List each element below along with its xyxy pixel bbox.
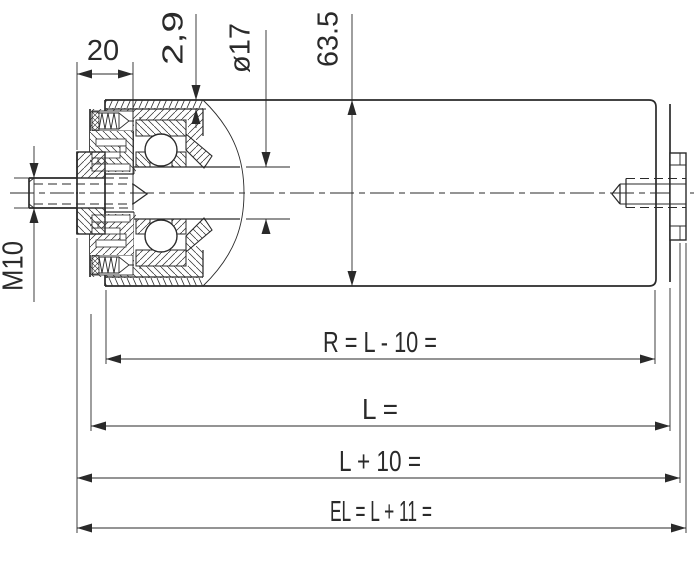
dim-wall-label: 2,9 (158, 11, 190, 65)
dimension-thread-m10: M10 (0, 146, 39, 302)
arrowhead (30, 208, 39, 223)
arrowhead (106, 355, 121, 364)
dimension-r: R = L - 10 = (106, 290, 655, 364)
arrowhead (640, 355, 655, 364)
dim-tube-label: 63.5 (313, 11, 345, 67)
arrowhead (348, 100, 357, 115)
arrowhead (30, 163, 39, 178)
arrowhead (118, 70, 133, 79)
right-thread-cone (612, 184, 620, 204)
thread-end-cone (133, 184, 147, 204)
arrowhead (262, 152, 271, 167)
dimension-l: L = (91, 288, 670, 431)
drawing-svg: 20 2,9 ø17 63.5 M10 (0, 0, 700, 565)
arrowhead (671, 524, 686, 533)
dim-shaft-label: ø17 (225, 23, 257, 73)
dim-20-label: 20 (87, 35, 119, 67)
technical-drawing-roller: 20 2,9 ø17 63.5 M10 (0, 0, 700, 565)
arrowhead (348, 271, 357, 286)
dimension-shaft-dia17: ø17 (225, 23, 290, 234)
arrowhead (77, 474, 92, 483)
dim-thread-label: M10 (0, 241, 30, 291)
dim-l10-label: L + 10 = (339, 446, 421, 478)
dim-r-label: R = L - 10 = (323, 327, 437, 359)
arrowhead (665, 474, 680, 483)
arrowhead (262, 219, 271, 234)
left-shaft-stub (29, 178, 147, 208)
arrowhead (192, 85, 201, 100)
dimension-tube-dia63-5: 63.5 (313, 11, 357, 286)
arrowhead (655, 422, 670, 431)
dim-el-label: EL = L + 11 = (330, 496, 432, 528)
arrowhead (77, 524, 92, 533)
arrowhead (77, 70, 92, 79)
arrowhead (91, 422, 106, 431)
end-cap-boss (670, 153, 686, 240)
dim-l-label: L = (362, 394, 398, 426)
